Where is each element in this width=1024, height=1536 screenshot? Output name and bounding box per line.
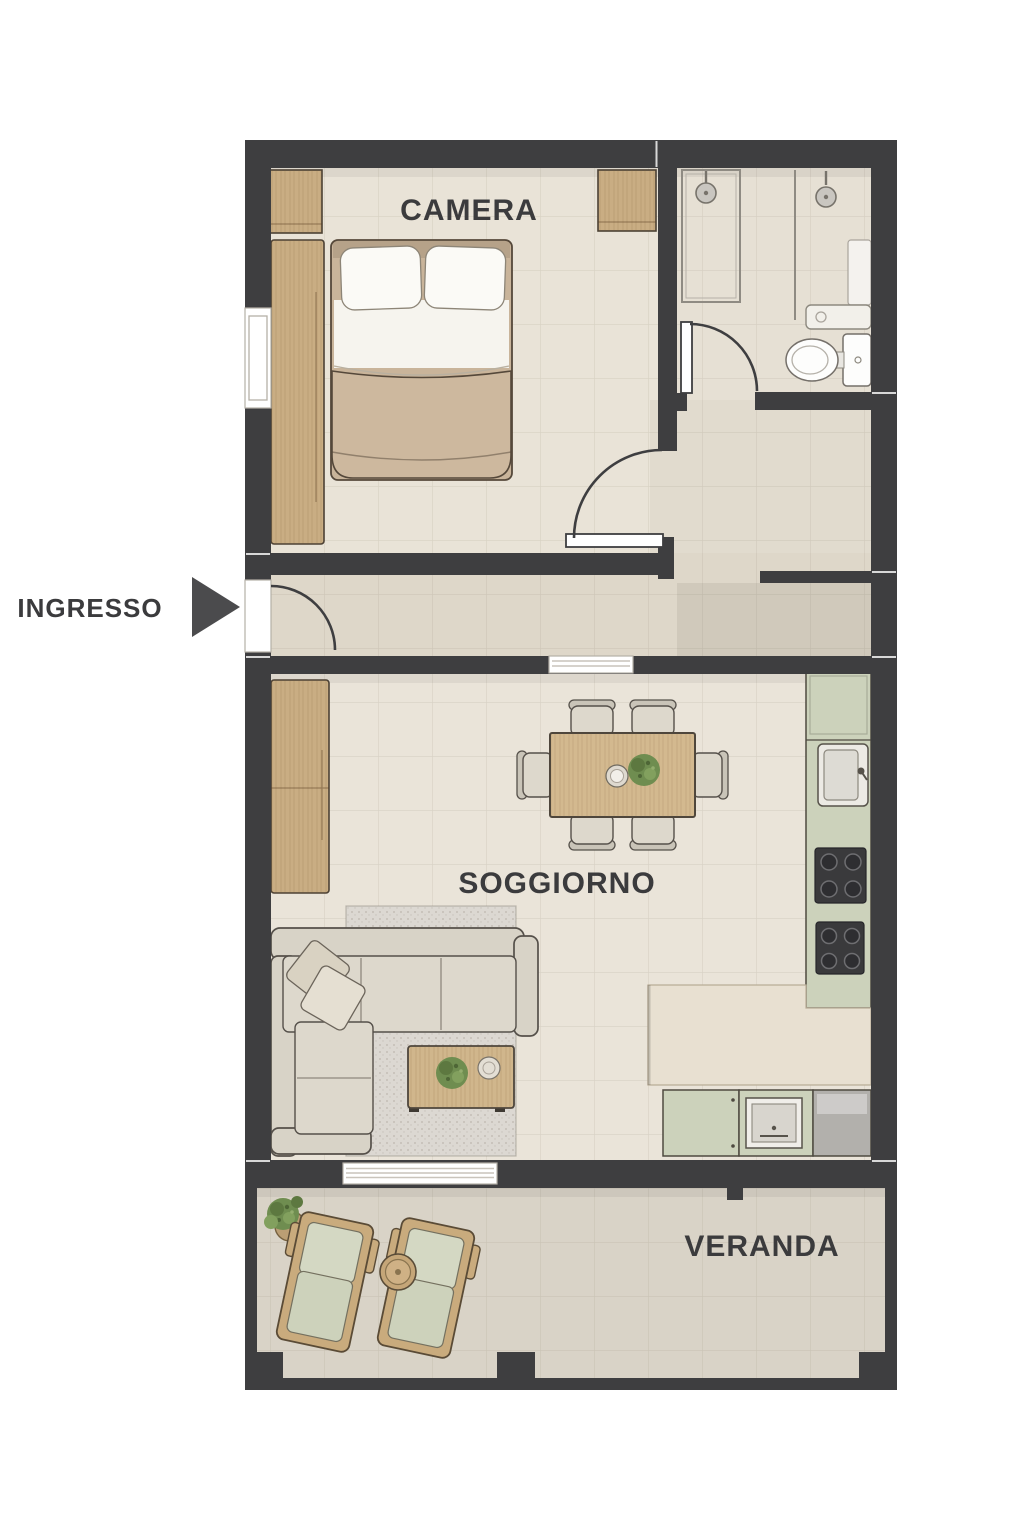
- table-plant-icon: [628, 754, 660, 786]
- hall-pocket-shade: [677, 583, 871, 656]
- dining-chair: [630, 814, 676, 850]
- dishwasher: [813, 1090, 871, 1156]
- veranda-wall-shadow: [257, 1188, 885, 1197]
- living-room-passage: [549, 656, 633, 673]
- wardrobe-upper-cabinet: [265, 170, 322, 233]
- coffee-table-plant-icon: [436, 1057, 468, 1089]
- veranda-window: [343, 1163, 497, 1184]
- cooktop-2: [816, 922, 864, 974]
- built-in-appliance: [746, 1098, 802, 1148]
- veranda-label: VERANDA: [684, 1230, 839, 1263]
- floor-plan-page: CAMERA INGRESSO SOGGIORNO VERANDA: [0, 0, 1024, 1536]
- bedroom-bottom-wall: [245, 553, 658, 575]
- kitchen-base-cabinets: [663, 1090, 871, 1156]
- bedroom-window: [245, 308, 271, 408]
- double-bed: [331, 240, 512, 480]
- pillow-left: [340, 246, 422, 311]
- bedroom-label: CAMERA: [400, 194, 538, 227]
- coffee-table: [408, 1046, 514, 1112]
- dining-chair: [692, 751, 728, 799]
- dining-chair: [569, 700, 615, 736]
- divider-wall-foot: [658, 393, 687, 411]
- bedroom-door-leaf: [566, 534, 663, 547]
- dining-chair: [569, 814, 615, 850]
- wall-panel: [848, 240, 871, 305]
- entrance-label: INGRESSO: [17, 593, 162, 623]
- coffee-table-tray: [478, 1057, 500, 1079]
- veranda-post-right: [859, 1352, 897, 1390]
- table-tray-inner: [611, 770, 624, 783]
- kitchen-sink: [818, 744, 868, 806]
- sideboard: [271, 680, 329, 893]
- veranda-post-middle: [497, 1352, 535, 1390]
- exterior-wall-top: [245, 140, 897, 168]
- bathroom-door-leaf: [681, 322, 692, 393]
- dining-chair: [630, 700, 676, 736]
- living-wall-shadow: [258, 674, 871, 683]
- pillow-right: [424, 246, 506, 311]
- entrance-arrow-icon: [192, 577, 240, 637]
- bed-blanket: [332, 371, 511, 478]
- side-table: [380, 1254, 416, 1290]
- wardrobe: [271, 240, 324, 544]
- veranda-post-left: [245, 1352, 283, 1390]
- living-room-label: SOGGIORNO: [458, 867, 655, 900]
- base-cabinet: [663, 1090, 739, 1156]
- dining-chair: [517, 751, 553, 799]
- nightstand: [598, 170, 656, 231]
- floor-plan-canvas: CAMERA INGRESSO SOGGIORNO VERANDA: [0, 0, 1024, 1536]
- veranda-post-top: [727, 1185, 743, 1200]
- veranda-rail-bottom: [245, 1378, 897, 1390]
- cooktop: [815, 848, 866, 903]
- bathroom-bottom-wall: [755, 392, 897, 410]
